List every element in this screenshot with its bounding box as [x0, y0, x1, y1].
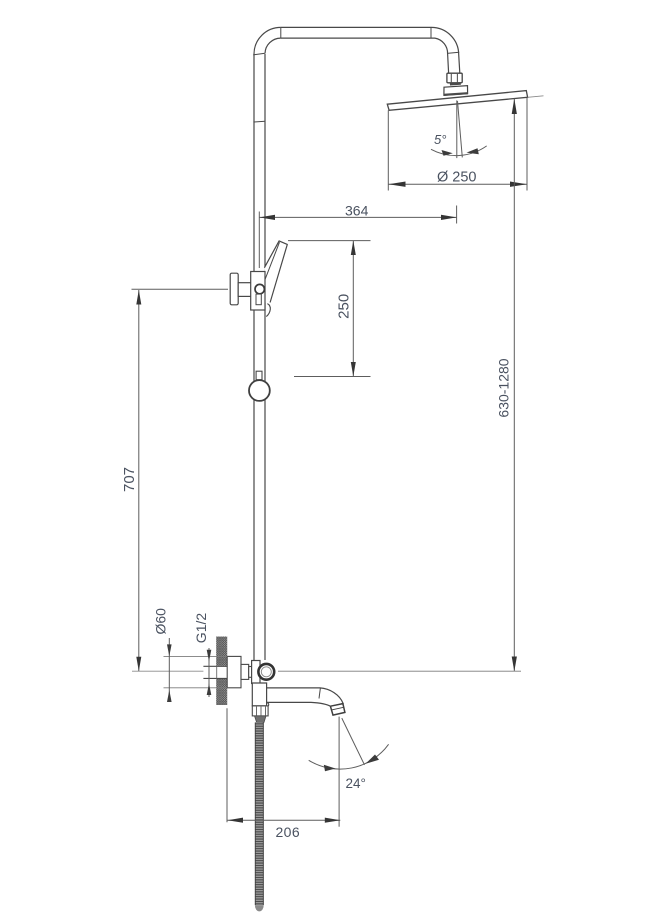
svg-text:250: 250 [336, 294, 353, 319]
svg-text:364: 364 [345, 203, 369, 219]
svg-text:707: 707 [121, 467, 138, 492]
svg-text:5°: 5° [434, 132, 446, 147]
svg-text:Ø60: Ø60 [152, 608, 168, 635]
svg-text:24°: 24° [346, 776, 366, 791]
svg-text:206: 206 [276, 824, 301, 840]
svg-text:G1/2: G1/2 [193, 613, 209, 644]
svg-text:Ø 250: Ø 250 [437, 170, 477, 186]
svg-text:630-1280: 630-1280 [495, 358, 511, 417]
